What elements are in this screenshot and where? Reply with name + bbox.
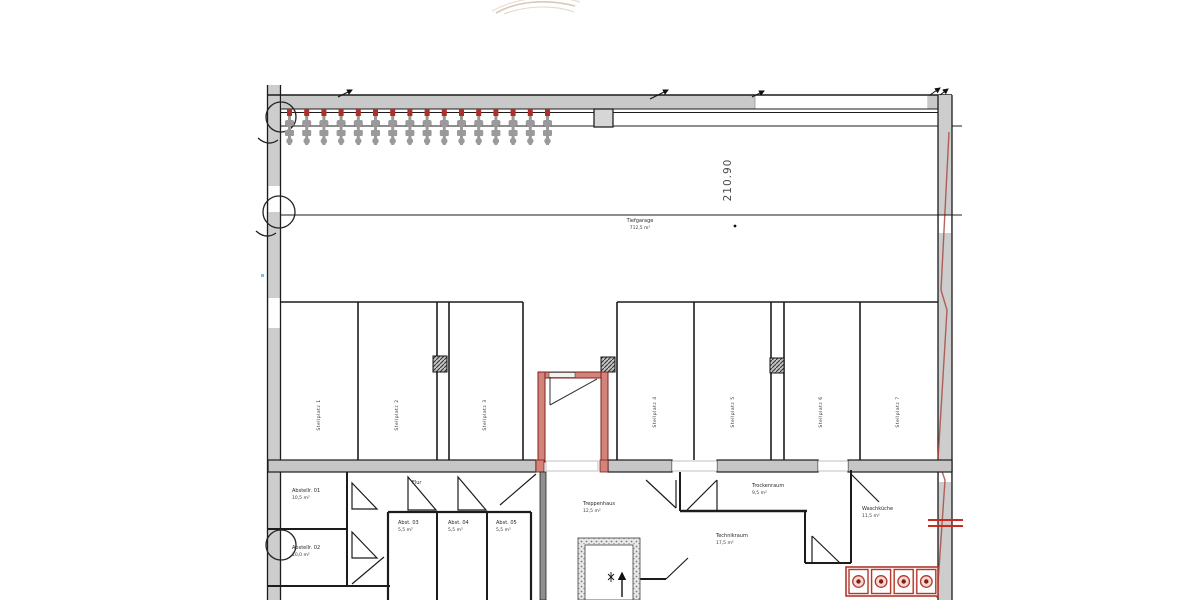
bike-stand-icon <box>354 109 363 145</box>
logo-swoosh-fragment <box>492 0 580 14</box>
room-label: Waschküche <box>862 506 893 512</box>
door-swing <box>646 480 676 508</box>
floor-plan-drawing: Tiefgarage 712,5 m² 210.90 Stellplatz 1 … <box>0 0 1200 600</box>
room-area: 5,5 m² <box>398 527 413 533</box>
bike-stand-icon <box>337 109 346 145</box>
washer-row <box>846 567 938 596</box>
door-swing <box>352 483 377 509</box>
door-swing <box>500 474 536 505</box>
room-label: Abstellr. 01 <box>292 488 320 494</box>
room-area: 12,5 m² <box>583 508 601 514</box>
bike-stand-icon <box>302 109 311 145</box>
bike-stand-icon <box>474 109 483 145</box>
washing-machine-icon <box>872 570 891 594</box>
exterior-walls <box>261 85 962 600</box>
bike-stand-icon <box>440 109 449 145</box>
room-label: Trockenraum <box>751 483 784 489</box>
bike-stand-icon <box>405 109 414 145</box>
red-shaft-room <box>538 372 608 462</box>
room-area: 9,5 m² <box>752 490 767 496</box>
corridor-wall <box>540 472 546 600</box>
garage-area: 712,5 m² <box>630 225 651 231</box>
room-area: 10,0 m² <box>292 552 310 558</box>
washing-machine-icon <box>917 570 936 594</box>
washing-machine-icon <box>894 570 913 594</box>
door-swing <box>550 379 597 405</box>
stall-label: Stellplatz 1 <box>316 399 322 430</box>
garage-label: Tiefgarage <box>626 218 654 224</box>
door-swing <box>812 536 840 563</box>
door-swing <box>352 532 377 558</box>
column <box>594 109 613 127</box>
room-label: Abstellr. 02 <box>292 545 320 551</box>
survey-tick <box>261 274 264 277</box>
bike-stand-icon <box>526 109 535 145</box>
column <box>770 358 784 373</box>
bike-stand-icon <box>388 109 397 145</box>
room-area: 11,5 m² <box>862 513 880 519</box>
left-wall <box>268 85 281 600</box>
room-label: Abst. 04 <box>448 520 469 526</box>
reference-dot <box>734 225 737 228</box>
room-area: 5,5 m² <box>496 527 511 533</box>
bike-stand-icon <box>509 109 518 145</box>
floor-plan-page: Tiefgarage 712,5 m² 210.90 Stellplatz 1 … <box>0 0 1200 600</box>
room-label: Abst. 03 <box>398 520 419 526</box>
bike-stand-icon <box>457 109 466 145</box>
parking-stalls <box>281 302 938 460</box>
door-swing <box>851 474 879 502</box>
door-swing <box>458 477 486 510</box>
column <box>601 357 615 372</box>
stall-label: Stellplatz 5 <box>730 396 736 427</box>
dimension-text: 210.90 <box>722 159 734 202</box>
elevator-shaft <box>578 538 640 600</box>
bike-stand-icon <box>491 109 500 145</box>
bike-rack-row <box>285 109 552 145</box>
main-interior-wall <box>268 460 952 472</box>
room-label: Technikraum <box>715 533 748 539</box>
washing-machine-icon <box>849 570 868 594</box>
door-swing <box>352 557 384 584</box>
bike-stand-icon <box>423 109 432 145</box>
stall-label: Stellplatz 3 <box>482 399 488 430</box>
bike-stand-icon <box>319 109 328 145</box>
room-label: Flur <box>412 480 422 486</box>
top-wall <box>281 95 755 109</box>
column <box>433 356 447 372</box>
bike-stand-icon <box>371 109 380 145</box>
stall-label: Stellplatz 2 <box>394 399 400 430</box>
bike-stand-icon <box>543 109 552 145</box>
stall-label: Stellplatz 4 <box>652 396 658 427</box>
room-label: Abst. 05 <box>496 520 517 526</box>
door-swing <box>687 480 717 510</box>
stall-label: Stellplatz 7 <box>895 396 901 427</box>
room-area: 10,5 m² <box>292 495 310 501</box>
room-area: 5,5 m² <box>448 527 463 533</box>
door-swing <box>666 558 688 579</box>
room-label: Treppenhaus <box>582 501 615 507</box>
room-area: 17,5 m² <box>716 540 734 546</box>
stall-label: Stellplatz 6 <box>818 396 824 427</box>
